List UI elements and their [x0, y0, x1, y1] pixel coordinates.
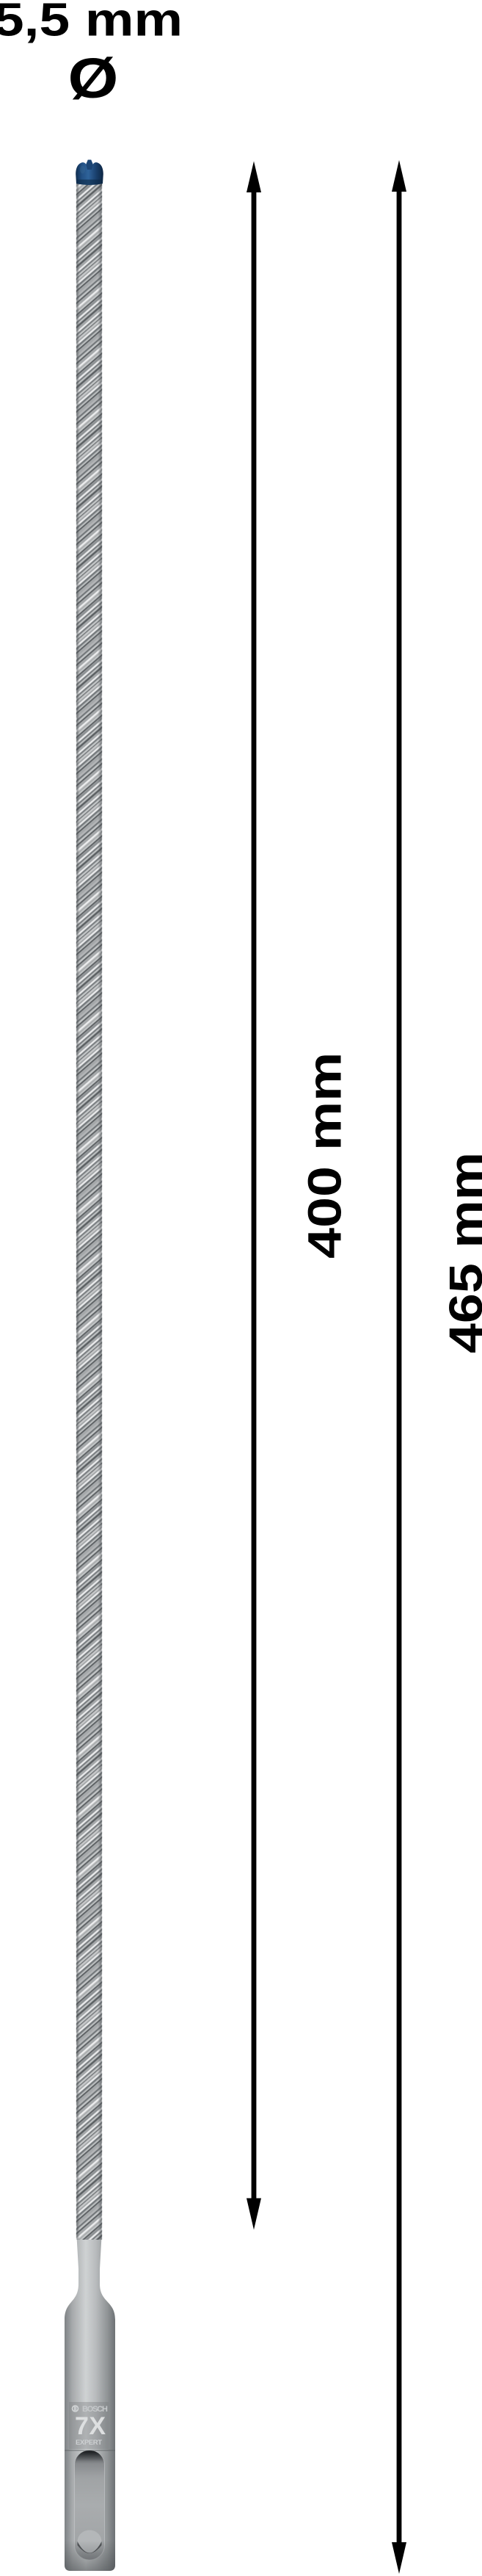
svg-text:EXPERT: EXPERT [76, 2439, 102, 2447]
svg-text:465 mm: 465 mm [439, 1152, 482, 1353]
svg-text:5,5 mm: 5,5 mm [0, 0, 183, 46]
svg-text:Ø: Ø [68, 46, 119, 109]
svg-text:7X: 7X [75, 2412, 106, 2440]
svg-text:400 mm: 400 mm [299, 1052, 351, 1259]
